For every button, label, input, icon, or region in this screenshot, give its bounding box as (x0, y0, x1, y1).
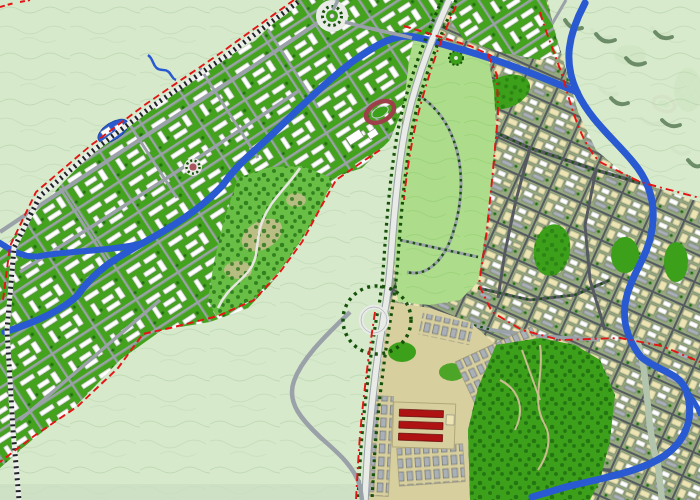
map-canvas (0, 0, 700, 500)
southern-city-park (468, 338, 615, 500)
small-circular-stadium (184, 158, 202, 176)
red-rowhouse-block (392, 402, 456, 449)
master-plan-map (0, 0, 700, 500)
